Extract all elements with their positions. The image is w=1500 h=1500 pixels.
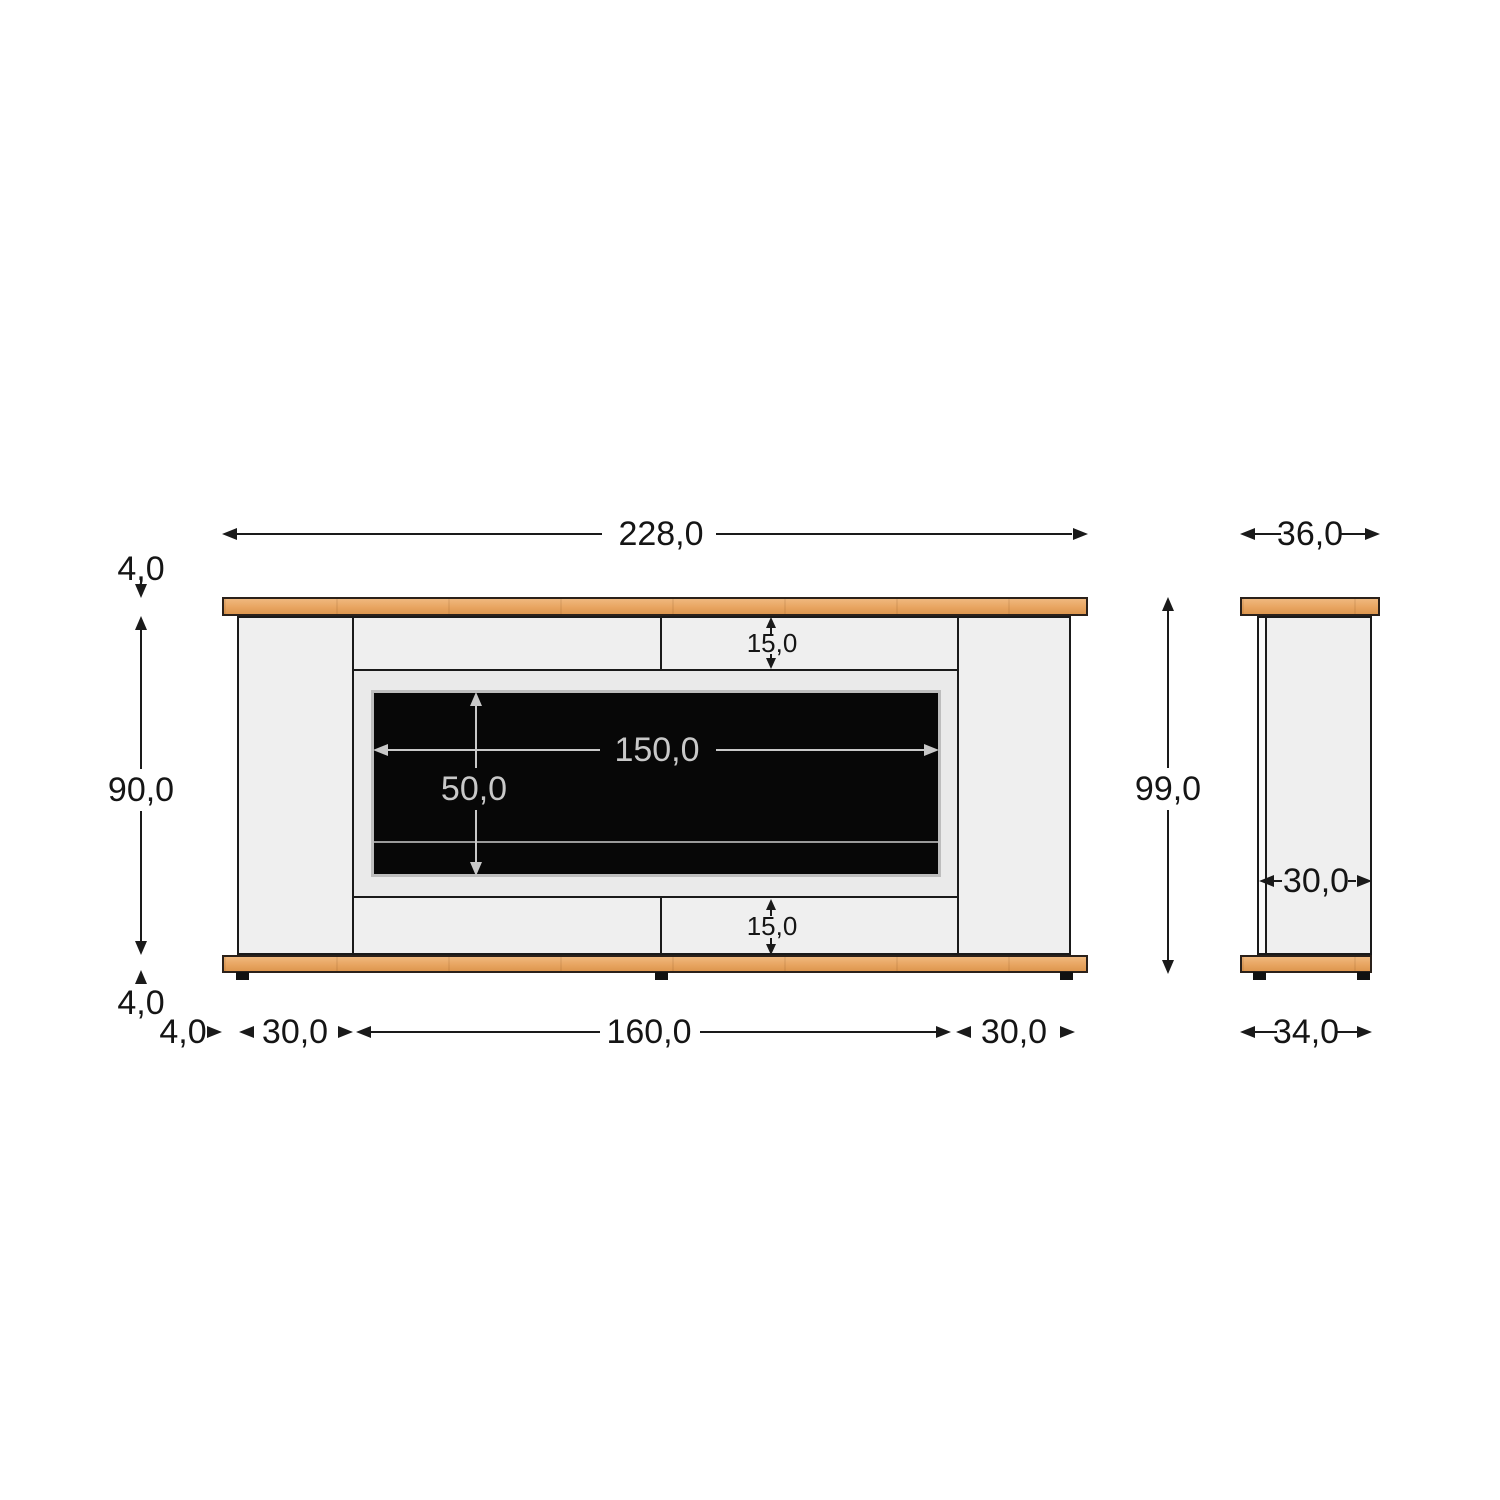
arrow-left-icon [956,1026,971,1038]
dim-line [700,1031,936,1033]
dim-right-pillar-width-label: 30,0 [981,1015,1047,1049]
arrow-left-icon [356,1026,371,1038]
side-bottom-board [1240,955,1372,973]
arrow-left-icon [1259,875,1274,887]
dim-line [716,533,1072,535]
arrow-right-icon [1073,528,1088,540]
front-foot-left [236,972,249,980]
front-body [237,616,1071,955]
dim-line [371,1031,600,1033]
dim-total-height-label: 99,0 [1135,772,1201,806]
dim-line [475,704,477,768]
arrow-down-icon [135,584,147,598]
dim-bottom-board-thickness-label: 4,0 [117,986,164,1020]
front-top-board [222,597,1088,616]
arrow-down-icon [766,658,776,669]
arrow-left-icon [1240,528,1255,540]
dim-base-side-gap-label: 4,0 [159,1015,206,1049]
arrow-right-icon [207,1026,222,1038]
left-pillar-divider-line [352,618,354,953]
dim-line [1339,533,1365,535]
dim-line [140,811,142,942]
side-foot-front [1253,972,1266,980]
dim-top-rail-height-label: 15,0 [747,630,798,656]
dim-line [716,749,924,751]
arrow-left-icon [1240,1026,1255,1038]
dim-line [1335,1031,1357,1033]
arrow-down-icon [470,862,482,876]
dim-side-top-depth-label: 36,0 [1277,517,1343,551]
right-pillar-divider-line [957,618,959,953]
technical-drawing-canvas: 228,0 36,0 4,0 90,0 4,0 4,0 30,0 160,0 3… [0,0,1500,1500]
side-front-panel-line [1265,618,1267,953]
bottom-rail-seam-line [660,898,662,953]
arrow-up-icon [135,616,147,630]
dim-line [475,810,477,864]
arrow-right-icon [338,1026,353,1038]
dim-line [1348,880,1356,882]
arrow-right-icon [924,744,939,756]
dim-body-height-label: 90,0 [108,773,174,807]
top-rail-seam-line [660,618,662,669]
arrow-right-icon [1060,1026,1075,1038]
arrow-up-icon [1162,597,1174,611]
arrow-up-icon [135,970,147,984]
fuel-bed-line [374,841,938,843]
dim-side-body-depth-label: 30,0 [1283,864,1349,898]
dim-line [388,749,600,751]
dim-total-width-label: 228,0 [618,517,703,551]
front-foot-center [655,972,668,980]
side-top-board [1240,597,1380,616]
dim-opening-width-label: 160,0 [606,1015,691,1049]
arrow-left-icon [373,744,388,756]
arrow-right-icon [1365,528,1380,540]
dim-screen-width-label: 150,0 [614,733,699,767]
side-body [1257,616,1372,955]
dim-screen-height-label: 50,0 [441,772,507,806]
dim-line [236,533,602,535]
arrow-down-icon [766,944,776,955]
arrow-right-icon [936,1026,951,1038]
front-foot-right [1060,972,1073,980]
dim-line [1274,880,1282,882]
arrow-left-icon [222,528,237,540]
arrow-right-icon [1357,1026,1372,1038]
dim-bottom-rail-height-label: 15,0 [747,913,798,939]
dim-line [1167,610,1169,768]
side-foot-back [1357,972,1370,980]
arrow-left-icon [239,1026,254,1038]
dim-left-pillar-width-label: 30,0 [262,1015,328,1049]
dim-side-base-depth-label: 34,0 [1273,1015,1339,1049]
dim-line [140,629,142,769]
arrow-right-icon [1357,875,1372,887]
dim-line [1167,810,1169,960]
front-bottom-board [222,955,1088,973]
arrow-down-icon [1162,960,1174,974]
arrow-down-icon [135,941,147,955]
